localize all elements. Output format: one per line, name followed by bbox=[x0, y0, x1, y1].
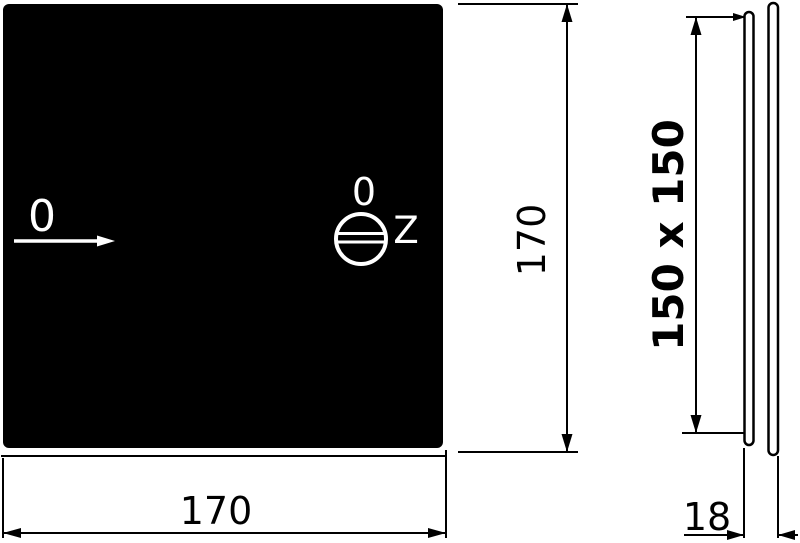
depth-dimension: 18 bbox=[683, 448, 798, 540]
cutout-dimension: 150 x 150 bbox=[644, 13, 746, 433]
side-view bbox=[745, 3, 779, 455]
arrow-left-icon bbox=[3, 528, 21, 538]
arrow-left-icon bbox=[778, 530, 795, 540]
screw-zero-label: 0 bbox=[352, 170, 376, 214]
width-dimension-label: 170 bbox=[180, 489, 253, 533]
cutout-dimension-label: 150 x 150 bbox=[644, 119, 693, 351]
arrow-down-icon bbox=[691, 415, 702, 433]
width-dimension: 170 bbox=[3, 450, 446, 538]
arrow-up-icon bbox=[562, 4, 573, 22]
depth-dimension-label: 18 bbox=[683, 495, 731, 539]
side-view-back-bar bbox=[769, 3, 779, 455]
drawing-canvas: 0 0 Z 170 bbox=[0, 0, 800, 543]
arrow-right-icon bbox=[428, 528, 446, 538]
height-dimension: 170 bbox=[458, 4, 578, 452]
arrow-up-icon bbox=[691, 17, 702, 35]
plate-zero-label: 0 bbox=[28, 191, 56, 242]
height-dimension-label: 170 bbox=[510, 204, 554, 277]
screw-zone-label: Z bbox=[393, 209, 418, 252]
side-view-front-bar bbox=[745, 12, 754, 445]
technical-drawing: 0 0 Z 170 bbox=[0, 0, 800, 543]
front-view-plate bbox=[3, 4, 443, 448]
arrow-down-icon bbox=[562, 434, 573, 452]
